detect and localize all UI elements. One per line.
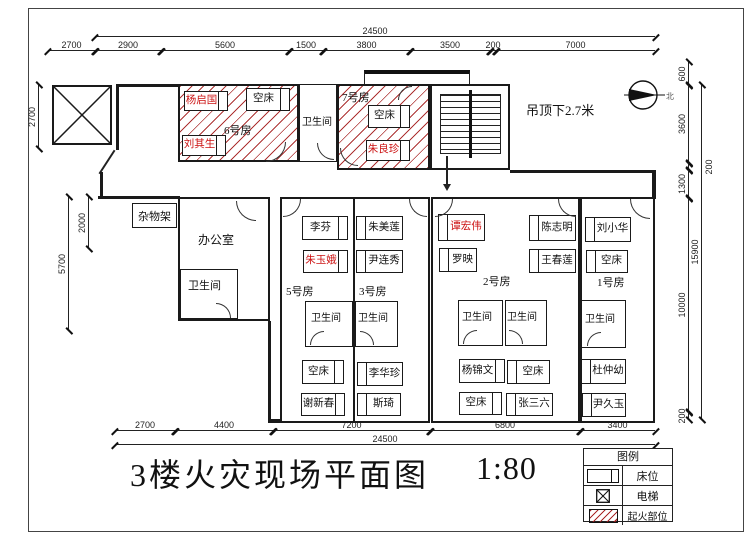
dim-label: 3600 bbox=[677, 114, 687, 134]
north-label: 北 bbox=[666, 91, 674, 102]
bed-pillow bbox=[280, 89, 289, 110]
legend-label: 电梯 bbox=[623, 488, 672, 504]
bed: 李芬 bbox=[302, 216, 348, 240]
dim-line-top: 7000 bbox=[496, 50, 655, 51]
dim-line-right: 10000 bbox=[688, 198, 689, 412]
wall bbox=[652, 170, 656, 199]
bed-name: 杨启国 bbox=[185, 96, 218, 107]
bed-name: 刘其生 bbox=[183, 140, 216, 151]
bed: 空床 bbox=[302, 360, 344, 384]
dim-label: 3800 bbox=[356, 40, 376, 50]
legend-title: 图例 bbox=[584, 449, 672, 466]
dim-line-right: 200 bbox=[688, 412, 689, 419]
bed: 空床 bbox=[586, 250, 628, 273]
dim-label: 5700 bbox=[57, 253, 67, 273]
bed-pillow bbox=[335, 394, 344, 415]
bed-name: 罗映 bbox=[449, 255, 476, 266]
bed-name: 空床 bbox=[517, 367, 549, 378]
wall bbox=[268, 321, 271, 421]
dim-label: 15900 bbox=[690, 239, 700, 264]
dim-line-right: 1300 bbox=[688, 170, 689, 198]
legend-row: 起火部位 bbox=[584, 506, 672, 525]
bed-name: 斯琦 bbox=[367, 399, 400, 410]
bed-name: 张三六 bbox=[516, 399, 552, 410]
room-label: 卫生间 bbox=[302, 113, 332, 128]
room-label: 7号房 bbox=[342, 89, 370, 105]
legend-label: 起火部位 bbox=[623, 508, 672, 523]
bed-pillow bbox=[338, 251, 347, 272]
wall bbox=[100, 172, 103, 199]
room-label: 办公室 bbox=[198, 231, 234, 248]
dim-line-top: 5600 bbox=[161, 50, 289, 51]
bed: 谭宏伟 bbox=[438, 214, 485, 241]
bed-pillow bbox=[338, 217, 347, 239]
fire-origin-symbol-icon bbox=[584, 506, 623, 525]
wall bbox=[116, 84, 180, 87]
dim-line-top: 2900 bbox=[95, 50, 161, 51]
dim-label: 2700 bbox=[135, 420, 155, 430]
bed-name: 空床 bbox=[596, 256, 627, 267]
legend-row: 床位 bbox=[584, 466, 672, 486]
bed-name: 谭宏伟 bbox=[448, 222, 484, 233]
bed-pillow bbox=[400, 106, 409, 127]
bed: 朱美莲 bbox=[356, 216, 403, 240]
dim-label: 2700 bbox=[27, 106, 37, 126]
dim-label: 1500 bbox=[296, 40, 316, 50]
bed-pillow bbox=[587, 251, 596, 272]
dim-label: 2900 bbox=[118, 40, 138, 50]
dim-label: 600 bbox=[677, 66, 687, 81]
bed: 空床 bbox=[507, 360, 550, 384]
dim-label: 200 bbox=[677, 408, 687, 423]
bed-name: 朱良珍 bbox=[367, 145, 400, 156]
bed-name: 空床 bbox=[247, 94, 280, 105]
floor-plan-sheet: 24500 2700 2900 5600 1500 3800 3500 200 … bbox=[0, 0, 752, 540]
bed-name: 谢新春 bbox=[302, 399, 335, 410]
room-label: 3号房 bbox=[359, 283, 387, 299]
bed-name: 空床 bbox=[369, 111, 400, 122]
dim-line-top: 2700 bbox=[48, 50, 95, 51]
bed-pillow bbox=[358, 363, 367, 385]
wall bbox=[116, 84, 119, 150]
bed: 空床 bbox=[246, 88, 290, 111]
bed-symbol-icon bbox=[584, 466, 623, 485]
bed-name: 空床 bbox=[303, 367, 334, 378]
stair-rail bbox=[469, 90, 472, 158]
room-label: 卫生间 bbox=[585, 310, 615, 325]
bed-name: 朱玉娥 bbox=[304, 256, 338, 267]
bed-pillow bbox=[495, 360, 504, 382]
wall bbox=[510, 170, 656, 173]
bed-pillow bbox=[218, 92, 227, 110]
bed: 谢新春 bbox=[301, 393, 345, 416]
bed-pillow bbox=[507, 394, 516, 415]
legend-label: 床位 bbox=[623, 468, 672, 484]
bed: 罗映 bbox=[439, 248, 477, 272]
bed-name: 朱美莲 bbox=[366, 223, 402, 234]
dim-line-bottom: 6800 bbox=[430, 430, 580, 431]
dim-line-bottom: 4400 bbox=[175, 430, 273, 431]
bed-pillow bbox=[357, 251, 366, 272]
stair-direction-arrow bbox=[446, 156, 448, 184]
room-label: 1号房 bbox=[597, 274, 625, 290]
bed-pillow bbox=[334, 361, 343, 383]
storage-rack-label: 杂物架 bbox=[138, 208, 171, 224]
dim-label: 24500 bbox=[362, 26, 387, 36]
dim-line-bottom: 3400 bbox=[580, 430, 655, 431]
dim-label: 2000 bbox=[77, 212, 87, 232]
bed-pillow bbox=[583, 394, 592, 416]
bed-pillow bbox=[492, 393, 501, 414]
room-label: 5号房 bbox=[286, 283, 314, 299]
bed-name: 李芬 bbox=[303, 223, 338, 234]
dim-line-top: 3500 bbox=[410, 50, 490, 51]
bed: 杜仲幼 bbox=[581, 359, 626, 384]
bed-pillow bbox=[508, 361, 517, 383]
dim-line-left: 2700 bbox=[38, 85, 39, 148]
elevator-symbol-icon bbox=[584, 486, 623, 505]
dim-line-left: 5700 bbox=[68, 197, 69, 330]
bed-name: 尹久玉 bbox=[592, 400, 625, 411]
dim-label: 24500 bbox=[372, 434, 397, 444]
bed: 朱玉娥 bbox=[303, 250, 348, 273]
room-label: 6号房 bbox=[224, 122, 252, 138]
bed: 斯琦 bbox=[357, 393, 401, 416]
room-label: 卫生间 bbox=[311, 309, 341, 324]
bed-name: 王春莲 bbox=[539, 256, 575, 267]
room-label: 2号房 bbox=[483, 273, 511, 289]
stair-arrow-head bbox=[443, 184, 451, 191]
bed: 王春莲 bbox=[529, 249, 576, 273]
bed-name: 陈志明 bbox=[539, 223, 575, 234]
room-label: 卫生间 bbox=[507, 308, 537, 323]
bed-name: 尹连秀 bbox=[366, 256, 402, 267]
dim-line-right-overall: 15900 bbox=[701, 85, 702, 419]
wall bbox=[98, 196, 180, 199]
dim-line-bottom: 2700 bbox=[115, 430, 175, 431]
room-label: 卫生间 bbox=[188, 277, 221, 293]
dim-label: 2700 bbox=[61, 40, 81, 50]
dim-label: 3500 bbox=[440, 40, 460, 50]
dim-line-right: 3600 bbox=[688, 85, 689, 163]
bed: 杨启国 bbox=[184, 91, 228, 111]
bed: 朱良珍 bbox=[366, 140, 410, 161]
bed-pillow bbox=[582, 360, 591, 383]
bed-name: 刘小华 bbox=[595, 224, 630, 235]
bed-pillow bbox=[439, 215, 448, 240]
dim-label: 5600 bbox=[215, 40, 235, 50]
bed-pillow bbox=[358, 394, 367, 415]
dim-label: 1300 bbox=[677, 174, 687, 194]
bed-pillow bbox=[440, 249, 449, 271]
drawing-title: 3楼火灾现场平面图 bbox=[130, 450, 429, 496]
bed-name: 李华珍 bbox=[367, 369, 402, 380]
dim-label: 200 bbox=[704, 159, 714, 174]
north-arrow-icon bbox=[624, 76, 668, 114]
bed-pillow bbox=[216, 136, 225, 155]
bed: 李华珍 bbox=[357, 362, 403, 386]
elevator-x-icon bbox=[54, 87, 110, 143]
bed: 陈志明 bbox=[529, 215, 576, 241]
bed-name: 杜仲幼 bbox=[591, 366, 625, 377]
dim-line-left: 2000 bbox=[88, 197, 89, 248]
bed-pillow bbox=[530, 216, 539, 240]
bed-name: 空床 bbox=[460, 398, 492, 409]
bed-pillow bbox=[586, 218, 595, 241]
elevator bbox=[52, 85, 112, 145]
bed: 杨锦文 bbox=[459, 359, 505, 383]
bed-pillow bbox=[400, 141, 409, 160]
dim-label: 4400 bbox=[214, 420, 234, 430]
bed: 刘其生 bbox=[182, 135, 226, 156]
dim-line-bottom-overall: 24500 bbox=[115, 444, 655, 445]
legend-row: 电梯 bbox=[584, 486, 672, 506]
storage-rack: 杂物架 bbox=[132, 203, 177, 228]
bed: 空床 bbox=[459, 392, 502, 415]
room-label: 卫生间 bbox=[462, 308, 492, 323]
dim-line-top: 1500 bbox=[289, 50, 323, 51]
dim-label: 7000 bbox=[565, 40, 585, 50]
bed: 空床 bbox=[368, 105, 410, 128]
room-label: 卫生间 bbox=[358, 309, 388, 324]
drawing-scale: 1:80 bbox=[476, 450, 537, 487]
dim-line-top-overall: 24500 bbox=[95, 36, 655, 37]
ceiling-note: 吊顶下2.7米 bbox=[526, 100, 594, 119]
bed: 刘小华 bbox=[585, 217, 631, 242]
dim-line-bottom: 7200 bbox=[273, 430, 430, 431]
bed: 尹连秀 bbox=[356, 250, 403, 273]
dim-line-top: 3800 bbox=[323, 50, 410, 51]
bed-pillow bbox=[357, 217, 366, 239]
bed-pillow bbox=[530, 250, 539, 272]
legend: 图例 床位 电梯 起火部位 bbox=[583, 448, 673, 522]
dim-label: 10000 bbox=[677, 292, 687, 317]
bed-name: 杨锦文 bbox=[460, 366, 495, 377]
bed: 尹久玉 bbox=[582, 393, 626, 417]
bed: 张三六 bbox=[506, 393, 553, 416]
